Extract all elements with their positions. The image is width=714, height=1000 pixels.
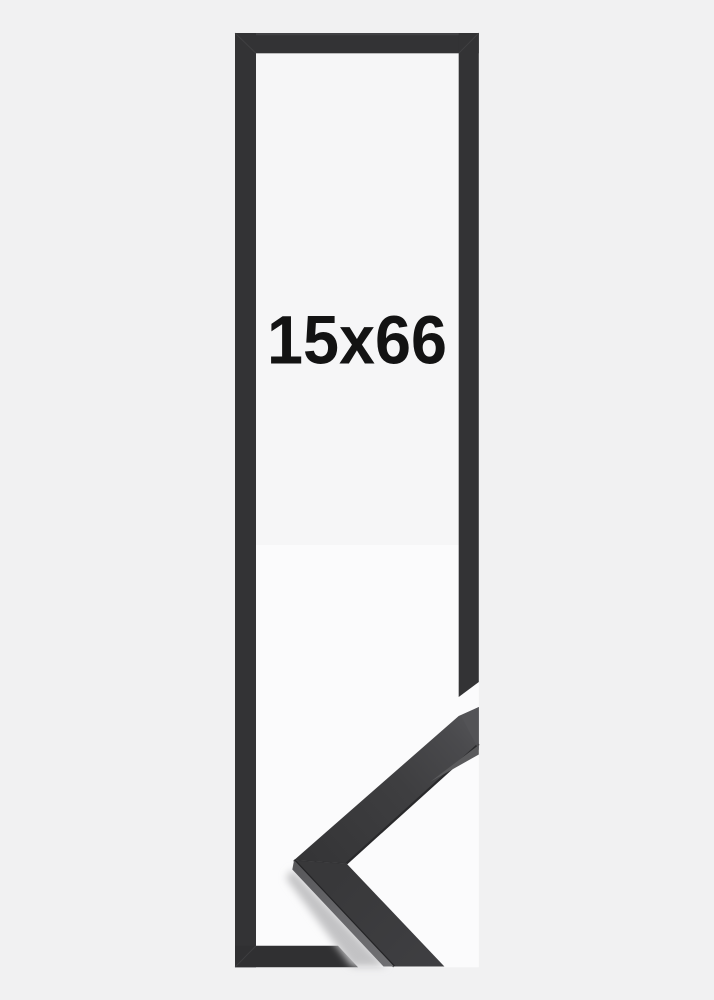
svg-text:15x66: 15x66: [267, 303, 447, 379]
